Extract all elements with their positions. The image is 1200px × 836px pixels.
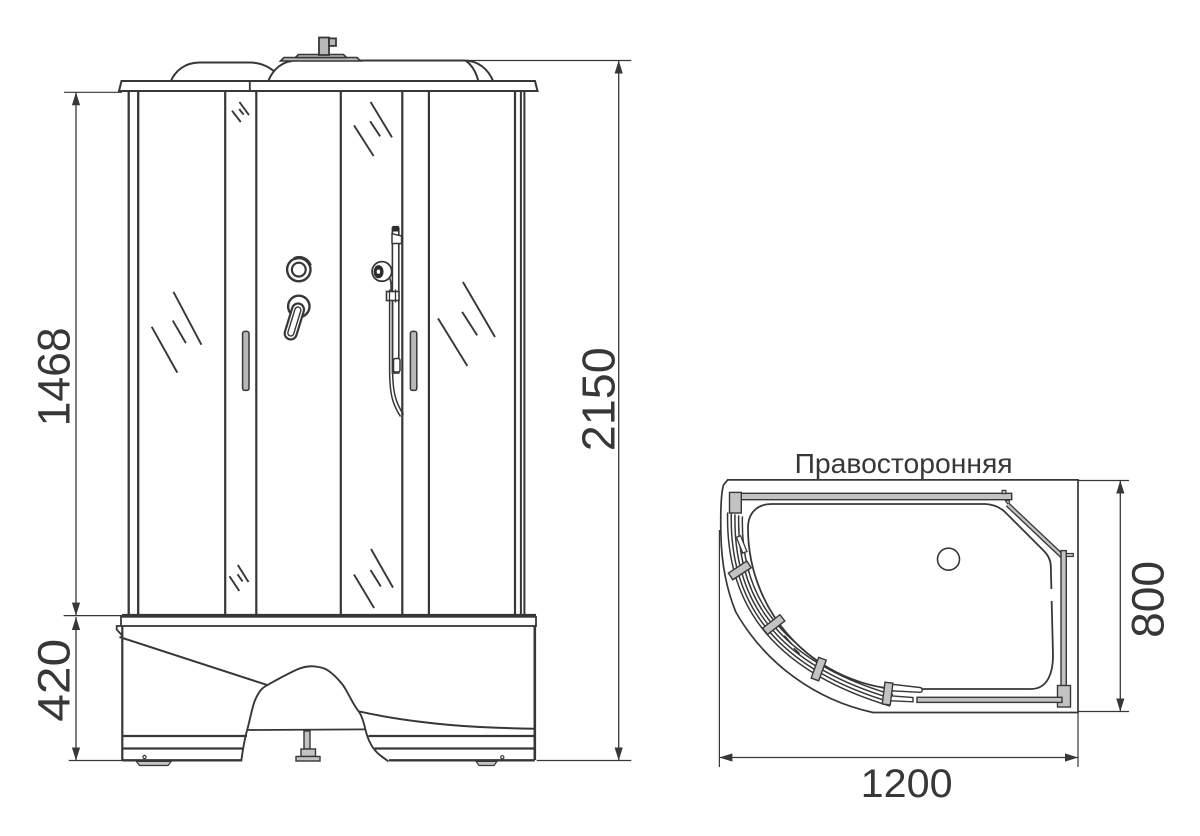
svg-text:1468: 1468 <box>29 327 80 426</box>
svg-text:2150: 2150 <box>573 347 625 451</box>
svg-text:1200: 1200 <box>861 762 953 806</box>
svg-text:Правосторонняя: Правосторонняя <box>795 448 1013 479</box>
svg-text:420: 420 <box>29 639 80 722</box>
svg-text:800: 800 <box>1123 561 1174 638</box>
